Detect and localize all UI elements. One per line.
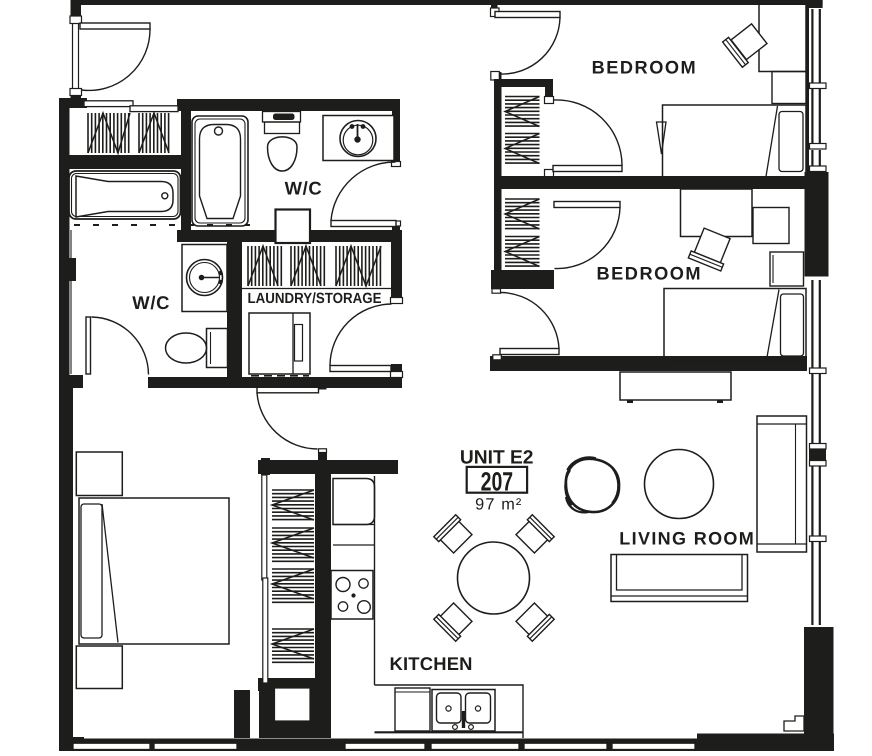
svg-text:BEDROOM: BEDROOM <box>597 264 702 284</box>
svg-text:UNIT E2: UNIT E2 <box>460 447 534 468</box>
svg-text:W/C: W/C <box>285 178 323 199</box>
svg-text:97 m²: 97 m² <box>475 496 522 514</box>
svg-text:KITCHEN: KITCHEN <box>390 653 473 674</box>
svg-text:LAUNDRY/STORAGE: LAUNDRY/STORAGE <box>248 291 382 307</box>
svg-text:LIVING ROOM: LIVING ROOM <box>619 529 755 549</box>
svg-text:W/C: W/C <box>132 292 170 313</box>
svg-text:BEDROOM: BEDROOM <box>592 58 697 78</box>
svg-text:207: 207 <box>481 466 514 496</box>
